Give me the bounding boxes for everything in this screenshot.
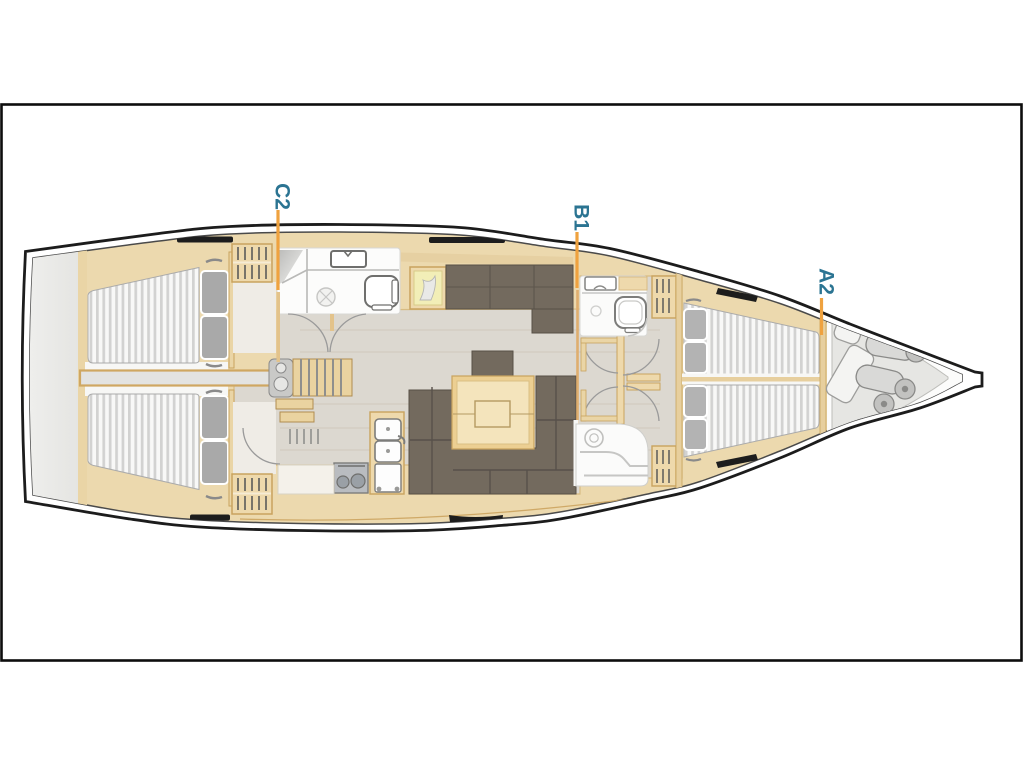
svg-text:C2: C2 (271, 183, 294, 210)
svg-text:B1: B1 (570, 204, 593, 231)
svg-text:A2: A2 (815, 268, 838, 295)
